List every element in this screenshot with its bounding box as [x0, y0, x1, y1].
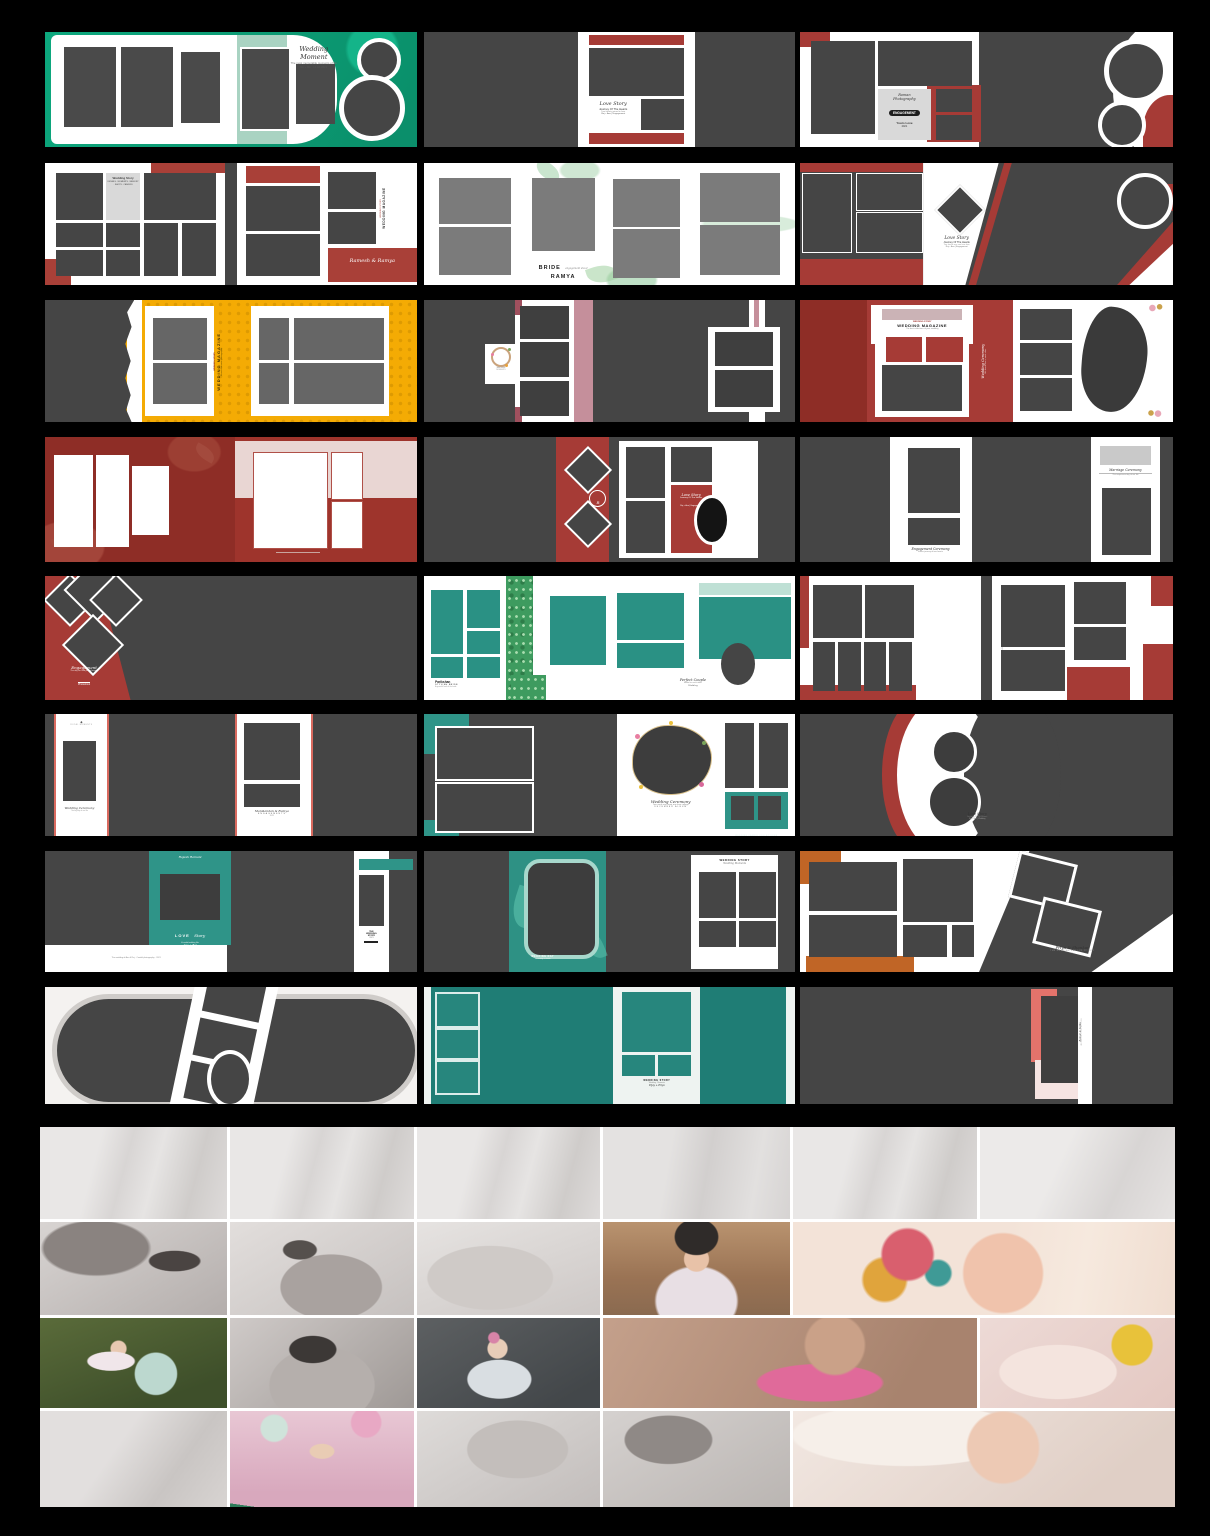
photo-circle	[1098, 101, 1146, 147]
accent-block	[1067, 667, 1130, 700]
photo-placeholder	[952, 925, 974, 956]
accent-band	[699, 583, 792, 594]
photo-placeholder	[56, 250, 103, 276]
photo-placeholder	[106, 223, 139, 247]
photo-teal	[467, 590, 500, 628]
foot-line: The wedding of Anu & Raj · Candid photog…	[45, 957, 227, 959]
side-text: THE WEDDING STORY 2021	[354, 931, 389, 943]
photo-placeholder	[908, 448, 960, 513]
accent-bar	[800, 163, 923, 172]
photo-placeholder	[63, 741, 96, 801]
template-card-love-story: Love Story Journey Of The Hearts Two hea…	[424, 32, 795, 147]
couple-names: Ramesh & Ramya	[328, 258, 417, 264]
accent-bar	[151, 163, 225, 173]
photo-placeholder	[856, 173, 923, 212]
photo-placeholder	[1041, 996, 1078, 1083]
brand-tiny: A graceful look of the bride	[435, 686, 509, 688]
photo-circle	[1104, 39, 1168, 103]
caption-script: Vijay + Priya	[613, 1084, 700, 1087]
photo-oval	[694, 495, 730, 545]
template-card-salmon-strip: Raman & Sethu WEDDING COLLECTION	[800, 987, 1173, 1104]
header-script: Rajesh Ramani	[149, 855, 231, 859]
vertical-title: WEDDING STORY WEDDING MAGAZINE A real mo…	[214, 315, 247, 408]
template-title: Wedding Moment	[289, 45, 339, 61]
photo-placeholder	[153, 363, 207, 404]
mag-sub: The best collections of your wedding	[875, 328, 970, 330]
photo-teal	[435, 992, 480, 1029]
band-title: LOVE Story A candid wedding film Anu + R…	[149, 924, 231, 947]
photo-placeholder	[1020, 309, 1072, 341]
template-subtitle: The day we said yes to forever	[56, 670, 112, 672]
photo-teal	[467, 631, 500, 655]
couple-foot: Wedding	[669, 684, 717, 687]
page-edge	[786, 987, 795, 1104]
accent-block	[1100, 446, 1150, 465]
photo-placeholder	[936, 89, 971, 113]
photo-placeholder	[56, 173, 103, 220]
template-card-red-floral	[45, 437, 417, 562]
baby-photo-bw-eye	[230, 1318, 414, 1408]
photo-placeholder	[813, 585, 861, 638]
photo-placeholder	[1020, 378, 1072, 411]
vertical-sub: A real moments photography	[221, 315, 223, 408]
teal-block	[359, 859, 413, 870]
photo-slab	[45, 300, 134, 422]
photo-oval	[721, 643, 755, 685]
caption-script: Marriage Ceremony	[1091, 468, 1160, 472]
magazine-title: WEDDING STORY WEDDING MAGAZINE The best …	[875, 321, 970, 330]
photo-placeholder	[520, 342, 568, 377]
column-caption: WEDDING STORY Wedding · Moments Vijay + …	[613, 1079, 700, 1087]
photo-placeholder	[520, 306, 568, 339]
photo-placeholder	[809, 862, 897, 912]
template-card-red-grid: WEDDING MOMENTS 2021	[800, 576, 1173, 700]
teal-caption: WEDDING CANDID COLLECTIONS	[725, 823, 789, 836]
baby-photo-duck-baby	[980, 1318, 1175, 1408]
caption-year: 2021	[235, 815, 309, 817]
panel-lines: DETAILS · MOMENTS · MEMORY · SHOTS · CAN…	[106, 180, 139, 188]
photo-placeholder	[613, 179, 680, 227]
photo-placeholder	[813, 642, 835, 690]
template-caps: DECEMBER ALBUM	[621, 806, 721, 808]
template-card-wedding-magazine-red: Wedding Story DETAILS · MOMENTS · MEMORY…	[45, 163, 417, 285]
photo-circle	[1117, 173, 1173, 229]
side-year: 2021	[354, 937, 389, 939]
template-card-wreath-ceremony: Wedding Ceremony Two souls one heart one…	[424, 714, 795, 836]
photo-placeholder	[626, 447, 665, 498]
photo-placeholder	[802, 173, 852, 253]
photo-placeholder	[626, 501, 665, 552]
poster-canvas: Wedding Moment The most memorable moment…	[0, 0, 1210, 1536]
photo-placeholder	[758, 796, 781, 819]
template-card-teal-columns: WEDDING STORY Wedding · Moments Vijay + …	[424, 987, 795, 1104]
accent-header	[246, 166, 320, 182]
photo-placeholder	[532, 178, 595, 251]
photo-placeholder	[144, 173, 217, 220]
photo-placeholder	[739, 872, 776, 918]
accent-band	[574, 300, 593, 422]
photo-placeholder	[739, 921, 776, 947]
baby-photo-bw	[40, 1411, 227, 1507]
photo-teal	[431, 657, 463, 678]
wreath-text2: MOMENTS	[485, 369, 517, 371]
title-caps: LOVE	[175, 933, 190, 938]
photo-placeholder	[671, 447, 712, 482]
baby-photo-bw	[793, 1127, 977, 1219]
baby-photo-bw	[230, 1127, 414, 1219]
photo-placeholder	[715, 332, 773, 366]
template-line: Raj + Anu | Wedding	[949, 818, 1005, 820]
baby-photo-pink-baby	[603, 1318, 977, 1408]
template-card-wedding-magazine-yellow: WEDDING STORY WEDDING MAGAZINE A real mo…	[45, 300, 417, 422]
photo-placeholder	[731, 796, 754, 819]
photo-placeholder	[328, 172, 376, 209]
photo-placeholder	[1001, 585, 1064, 647]
floral-decor	[1147, 302, 1165, 314]
template-card-white-strips: ◆ ROYAL MOMENTS Wedding Ceremony The big…	[45, 714, 417, 836]
photo-placeholder	[294, 363, 383, 404]
title-block: Love Story Journey Of The Hearts Two hea…	[929, 236, 985, 248]
photo-frame-empty	[96, 455, 128, 548]
accent-corner	[1151, 576, 1173, 606]
template-card-engagement: Roman Photography ENGAGEMENT Yours Love …	[800, 32, 1173, 147]
photo-placeholder	[878, 41, 971, 86]
template-card-teal-pattern: Parikshan STYLISH BRIDE A graceful look …	[424, 576, 795, 700]
photo-placeholder	[882, 365, 962, 411]
pattern-tab	[511, 675, 546, 700]
divider-line	[276, 552, 321, 553]
title-block: Wedding Ceremony Two souls one heart one…	[621, 799, 721, 808]
template-card-wedding-magazine-maroon: WEDDING STORY WEDDING MAGAZINE The best …	[800, 300, 1173, 422]
photo-teal	[435, 1060, 480, 1096]
page-edge	[424, 987, 431, 1104]
vertical-main: WEDDING MAGAZINE	[382, 173, 386, 244]
photo-placeholder	[613, 229, 680, 277]
photo-placeholder	[56, 223, 103, 247]
photo-teal	[617, 593, 684, 640]
wreath-card: WEDDING MOMENTS	[485, 344, 517, 384]
accent-bar	[800, 259, 923, 285]
vertical-title: WEDDING STORY WEDDING MAGAZINE	[380, 173, 413, 244]
photo-circle	[339, 75, 405, 141]
template-card-pill-collage	[45, 987, 417, 1104]
photo-placeholder	[160, 874, 220, 920]
template-card-wedding-moment: Wedding Moment The most memorable moment…	[45, 32, 417, 147]
ceremony-sub: We found love in each other	[985, 312, 987, 410]
info-panel: Roman Photography ENGAGEMENT Yours Love …	[878, 89, 930, 140]
baby-photo-bw	[603, 1411, 790, 1507]
photo-placeholder	[144, 223, 178, 276]
bride-tag: engagement shoot	[565, 267, 587, 270]
baby-photo-bw	[417, 1411, 600, 1507]
baby-photo-bw-face	[40, 1222, 227, 1315]
photo-placeholder	[435, 782, 534, 834]
floral-decor	[1143, 407, 1163, 419]
accent-block	[1143, 644, 1173, 700]
template-card-twin-strips: Engagement Ceremony A new journey of two…	[800, 437, 1173, 562]
page-shade	[800, 300, 867, 422]
title-script: Story	[194, 933, 205, 938]
photo-placeholder	[202, 987, 266, 1023]
photo-placeholder	[359, 875, 383, 926]
photo-placeholder	[1074, 627, 1126, 660]
accent-bar	[589, 133, 684, 144]
engagement-badge: ENGAGEMENT	[889, 110, 920, 116]
ceremony-vertical: Wedding Ceremony We found love in each o…	[981, 312, 1013, 410]
baby-photo-bw	[417, 1127, 600, 1219]
photo-placeholder	[153, 318, 207, 359]
photo-placeholder	[903, 859, 974, 922]
accent-bar	[589, 35, 684, 45]
photo-placeholder	[328, 212, 376, 244]
baby-photo-bw	[40, 1127, 227, 1219]
photo-placeholder	[699, 921, 736, 947]
baby-collage	[40, 1127, 1175, 1507]
accent-corner	[806, 956, 914, 972]
names-sub: WEDDING COLLECTION	[1082, 1006, 1083, 1057]
flower-dot	[508, 348, 511, 351]
baby-photo-birthday	[230, 1411, 414, 1507]
photo-placeholder	[1020, 343, 1072, 375]
template-line: Raj + Anu | Engagement	[929, 246, 985, 248]
flower-dot	[699, 782, 704, 787]
template-card-curve-love-story: Love Story Journey Of The Hearts Raj + A…	[800, 714, 1173, 836]
title-block: Wedding Moment The most memorable moment…	[289, 45, 339, 69]
panel-caption: WEDDING DAY Ceremony & Dinner	[511, 955, 574, 960]
baby-photo-bw	[603, 1127, 790, 1219]
photo-teal	[658, 1055, 691, 1075]
photo-placeholder	[641, 99, 684, 130]
photo-placeholder	[936, 115, 971, 140]
photo-placeholder	[182, 223, 216, 276]
photo-placeholder	[244, 784, 300, 807]
title-block: Love Story Journey Of The Hearts Raj + A…	[949, 812, 1005, 820]
photo-placeholder	[838, 642, 860, 690]
title-block: Engagement The day we said yes to foreve…	[56, 665, 112, 690]
photo-placeholder	[439, 178, 511, 224]
photo-placeholder	[1001, 650, 1064, 691]
photo-teal	[467, 657, 500, 678]
vertical-names: Raman & Sethu WEDDING COLLECTION	[1079, 1006, 1091, 1057]
header-script: Wedding Moments	[691, 862, 778, 865]
template-card-teal-frame: WEDDING DAY Ceremony & Dinner WEDDING ST…	[424, 851, 795, 972]
title-sub: A candid wedding film	[149, 942, 231, 944]
photo-placeholder	[520, 381, 568, 416]
year: 2021	[878, 125, 930, 128]
photo-frame-empty	[54, 455, 93, 548]
strip-caption: Engagement Ceremony A new journey of two…	[890, 547, 972, 553]
bride-name: RAMYA	[528, 274, 598, 280]
template-card-diamond-love-story: R Love Story Journey Of The Hearts Raj +…	[424, 437, 795, 562]
photo-placeholder	[106, 250, 139, 276]
monogram-letter: R	[596, 500, 599, 505]
baby-photo-bw	[417, 1222, 600, 1315]
photo-placeholder	[908, 518, 960, 544]
bride-label: BRIDE	[539, 265, 561, 271]
caption-sub: The auspicious day of our life	[1099, 473, 1152, 476]
photo-placeholder	[699, 872, 736, 918]
photo-placeholder	[121, 47, 173, 128]
photo-placeholder	[856, 212, 923, 252]
photo-placeholder	[296, 64, 335, 124]
photo-frame-empty	[331, 501, 363, 549]
photo-placeholder	[259, 318, 289, 359]
title-block: BRIDE engagement shoot RAMYA	[528, 256, 598, 280]
template-card-priya-shankar: Priya & Shankar THE WEDDING DAY | 25.12.…	[800, 851, 1173, 972]
photo-circle	[931, 729, 977, 775]
baby-photo-newborn	[793, 1411, 1175, 1507]
photo-teal	[622, 992, 691, 1052]
template-card-teal-band-love: Rajesh Ramani LOVE Story A candid weddin…	[45, 851, 417, 972]
strip-head: ROYAL MOMENTS	[56, 724, 106, 726]
caption-sub: A new journey of two hearts	[890, 551, 972, 553]
baby-photo-bw	[980, 1127, 1175, 1219]
title-block: Love Story Journey Of The Hearts Two hea…	[589, 101, 637, 115]
photo-placeholder	[864, 642, 886, 690]
caption-text: WEDDING CANDID COLLECTIONS	[735, 835, 777, 836]
baby-photo-toddler-pigtails	[603, 1222, 790, 1315]
strip-caption: Wedding Ceremony The big day of our life	[54, 806, 104, 812]
page-wedge	[923, 163, 1024, 285]
photo-placeholder	[1074, 582, 1126, 624]
photo-teal	[431, 590, 463, 654]
accent-rail	[969, 344, 973, 417]
photo-oval	[207, 1050, 253, 1104]
photo-teal	[550, 596, 606, 665]
template-card-bride-ramya: BRIDE engagement shoot RAMYA	[424, 163, 795, 285]
photo-placeholder	[903, 925, 948, 956]
template-card-engagement-triangles: Engagement The day we said yes to foreve…	[45, 576, 417, 700]
photo-placeholder	[246, 186, 320, 232]
template-card-rose-column: WEDDING MOMENTS	[424, 300, 795, 422]
caption-sub: The big day of our life	[54, 810, 104, 812]
side-bar	[364, 941, 378, 943]
photo-frame-empty	[253, 452, 328, 549]
baby-photo-headscarf	[793, 1222, 1175, 1315]
template-card-love-story-diagonal: Love Story Journey Of The Hearts Two hea…	[800, 163, 1173, 285]
accent-band	[882, 309, 962, 320]
photo-teal	[622, 1055, 655, 1075]
brand-block: Parikshan STYLISH BRIDE A graceful look …	[435, 680, 509, 688]
flower-dot	[491, 353, 494, 356]
photo-placeholder	[64, 47, 116, 128]
photo-placeholder	[700, 173, 780, 222]
script-block: Perfect Couple Made for each other Weddi…	[669, 678, 717, 687]
photo-placeholder	[294, 318, 383, 359]
photo-placeholder	[181, 52, 220, 123]
studio-name2: Photography	[878, 97, 930, 101]
accent-strip	[800, 576, 809, 648]
photo-frame-empty	[132, 466, 169, 535]
photo-rounded-frame	[524, 859, 599, 959]
photo-frame-empty	[331, 452, 363, 500]
photo-placeholder	[725, 723, 755, 788]
caption-sub: Ceremony & Dinner	[511, 958, 574, 960]
photo-placeholder	[244, 723, 300, 780]
photo-placeholder	[259, 363, 289, 404]
info-panel: Wedding Story DETAILS · MOMENTS · MEMORY…	[106, 173, 139, 220]
strip-caption: Manikandan & Ramya ENGAGEMENTS 2021	[235, 809, 309, 817]
band-header: Rajesh Ramani	[149, 855, 231, 859]
flower-dot	[505, 364, 508, 367]
photo-placeholder	[435, 726, 534, 781]
strip-caption: Marriage Ceremony The auspicious day of …	[1091, 468, 1160, 476]
photo-red	[886, 337, 923, 363]
photo-placeholder	[700, 225, 780, 276]
baby-photo-balloon-girl	[40, 1318, 227, 1408]
flower-dot	[639, 785, 643, 789]
baby-photo-bw-face	[230, 1222, 414, 1315]
photo-placeholder	[809, 915, 897, 957]
monogram-circle: R	[589, 490, 606, 507]
wreath-ring	[491, 347, 511, 367]
names-block: Priya & Shankar THE WEDDING DAY | 25.12.…	[1031, 945, 1113, 955]
template-date: Ro + Ra · 12.04.2021	[289, 65, 339, 69]
photo-placeholder	[246, 234, 320, 276]
baby-photo-rock-baby	[417, 1318, 600, 1408]
template-foot: Photoshoot	[78, 682, 90, 686]
photo-placeholder	[865, 585, 913, 638]
accent-sliver	[754, 300, 758, 327]
flourish-mark: ❧	[1031, 952, 1113, 955]
photo-placeholder	[589, 48, 684, 96]
photo-placeholder	[240, 47, 291, 132]
names-block: Ramesh & Ramya	[328, 248, 417, 282]
template-line: Raj + Anu | Engagement	[589, 113, 637, 115]
photo-placeholder	[439, 227, 511, 275]
foot-strip: The wedding of Anu & Raj · Candid photog…	[45, 945, 227, 972]
panel-header: WEDDING STORY Wedding Moments	[691, 858, 778, 865]
photo-placeholder	[811, 41, 874, 134]
photo-placeholder	[715, 370, 773, 408]
photo-placeholder	[1102, 488, 1150, 554]
page-notch	[749, 412, 766, 422]
accent-rail	[871, 344, 875, 417]
photo-red	[926, 337, 963, 363]
photo-circle	[927, 775, 981, 829]
photo-teal	[617, 643, 684, 668]
photo-placeholder	[889, 642, 911, 690]
photo-placeholder	[759, 723, 789, 788]
photo-teal	[435, 1028, 480, 1060]
